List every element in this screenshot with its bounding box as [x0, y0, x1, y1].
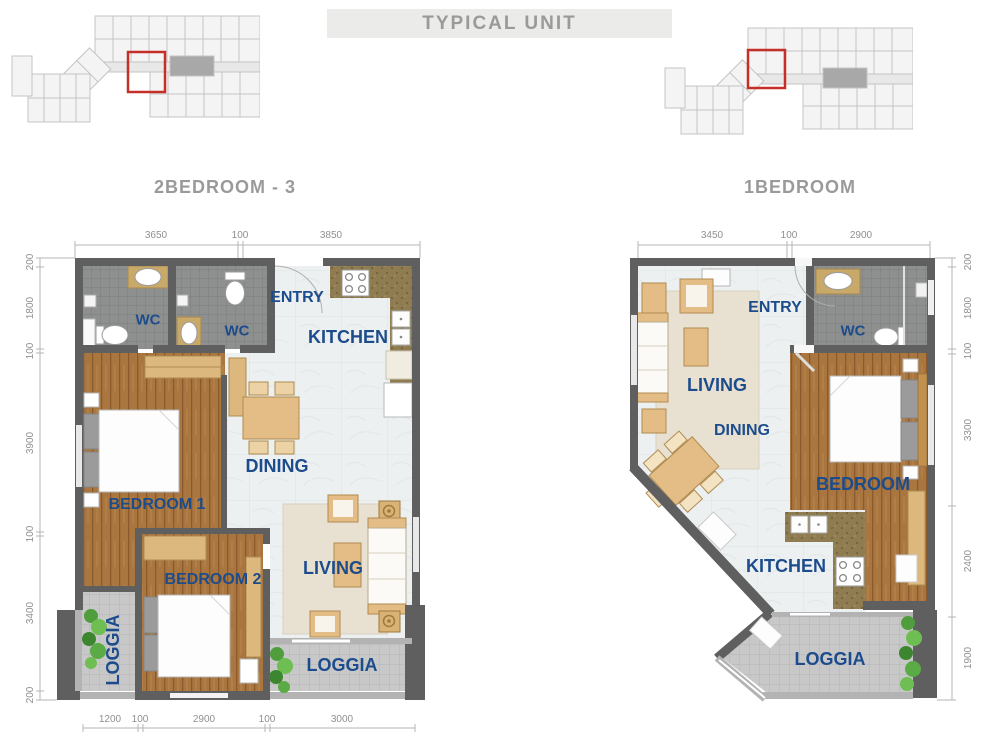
- room-label-entry: ENTRY: [270, 290, 324, 306]
- dimension-label: 100: [259, 715, 276, 725]
- dimension-label: 3900: [26, 432, 36, 454]
- typical-unit-sheet: TYPICAL UNIT: [0, 0, 1000, 734]
- room-label-loggia-front: LOGGIA: [307, 656, 378, 674]
- dimension-label: 1800: [964, 297, 974, 319]
- dimension-label: 3650: [145, 231, 167, 241]
- dimension-label: 100: [132, 715, 149, 725]
- building-overview-right-drawing: [663, 16, 913, 141]
- room-label-loggia: LOGGIA: [795, 650, 866, 668]
- dimension-label: 1200: [99, 715, 121, 725]
- floor-plan-2bedroom: WC WC ENTRY KITCHEN DINING BEDROOM 1 BED…: [20, 225, 450, 734]
- dimension-label: 100: [781, 231, 798, 241]
- plan-b-title: 1BEDROOM: [650, 177, 950, 198]
- dimension-label: 3450: [701, 231, 723, 241]
- sheet-title: TYPICAL UNIT: [422, 13, 577, 35]
- dimension-label: 200: [26, 254, 36, 271]
- room-label-loggia-side: LOGGIA: [104, 615, 122, 686]
- room-label-kitchen: KITCHEN: [746, 557, 826, 575]
- plan-a-title: 2BEDROOM - 3: [75, 177, 375, 198]
- sheet-title-bar: TYPICAL UNIT: [327, 9, 672, 38]
- room-label-living: LIVING: [303, 559, 363, 577]
- dimension-label: 3850: [320, 231, 342, 241]
- dimension-label: 100: [26, 343, 36, 360]
- dimension-label: 100: [964, 343, 974, 360]
- building-overview-left: [10, 4, 260, 134]
- building-overview-right: [663, 16, 913, 146]
- room-label-wc: WC: [841, 324, 866, 339]
- dimension-label: 3000: [331, 715, 353, 725]
- room-label-bedroom1: BEDROOM 1: [109, 497, 206, 513]
- dimension-label: 200: [26, 687, 36, 704]
- room-label-dining: DINING: [714, 423, 770, 439]
- room-label-wc1: WC: [136, 313, 161, 328]
- room-label-entry: ENTRY: [748, 300, 802, 316]
- building-overview-left-drawing: [10, 4, 260, 129]
- floor-plan-1bedroom: ENTRY WC LIVING DINING BEDROOM KITCHEN L…: [620, 225, 1000, 734]
- room-label-kitchen: KITCHEN: [308, 328, 388, 346]
- dimension-label: 2400: [964, 550, 974, 572]
- dimension-label: 2900: [850, 231, 872, 241]
- dimension-label: 100: [26, 526, 36, 543]
- dimension-label: 3400: [26, 602, 36, 624]
- room-label-wc2: WC: [225, 324, 250, 339]
- dimension-label: 3300: [964, 419, 974, 441]
- floor-plan-2bedroom-drawing: [20, 225, 450, 734]
- room-label-bedroom2: BEDROOM 2: [165, 572, 262, 588]
- room-label-dining: DINING: [246, 457, 309, 475]
- room-label-bedroom: BEDROOM: [816, 475, 910, 493]
- dimension-label: 2900: [193, 715, 215, 725]
- dimension-label: 200: [964, 254, 974, 271]
- dimension-label: 100: [232, 231, 249, 241]
- room-label-living: LIVING: [687, 376, 747, 394]
- dimension-label: 1900: [964, 647, 974, 669]
- dimension-label: 1800: [26, 297, 36, 319]
